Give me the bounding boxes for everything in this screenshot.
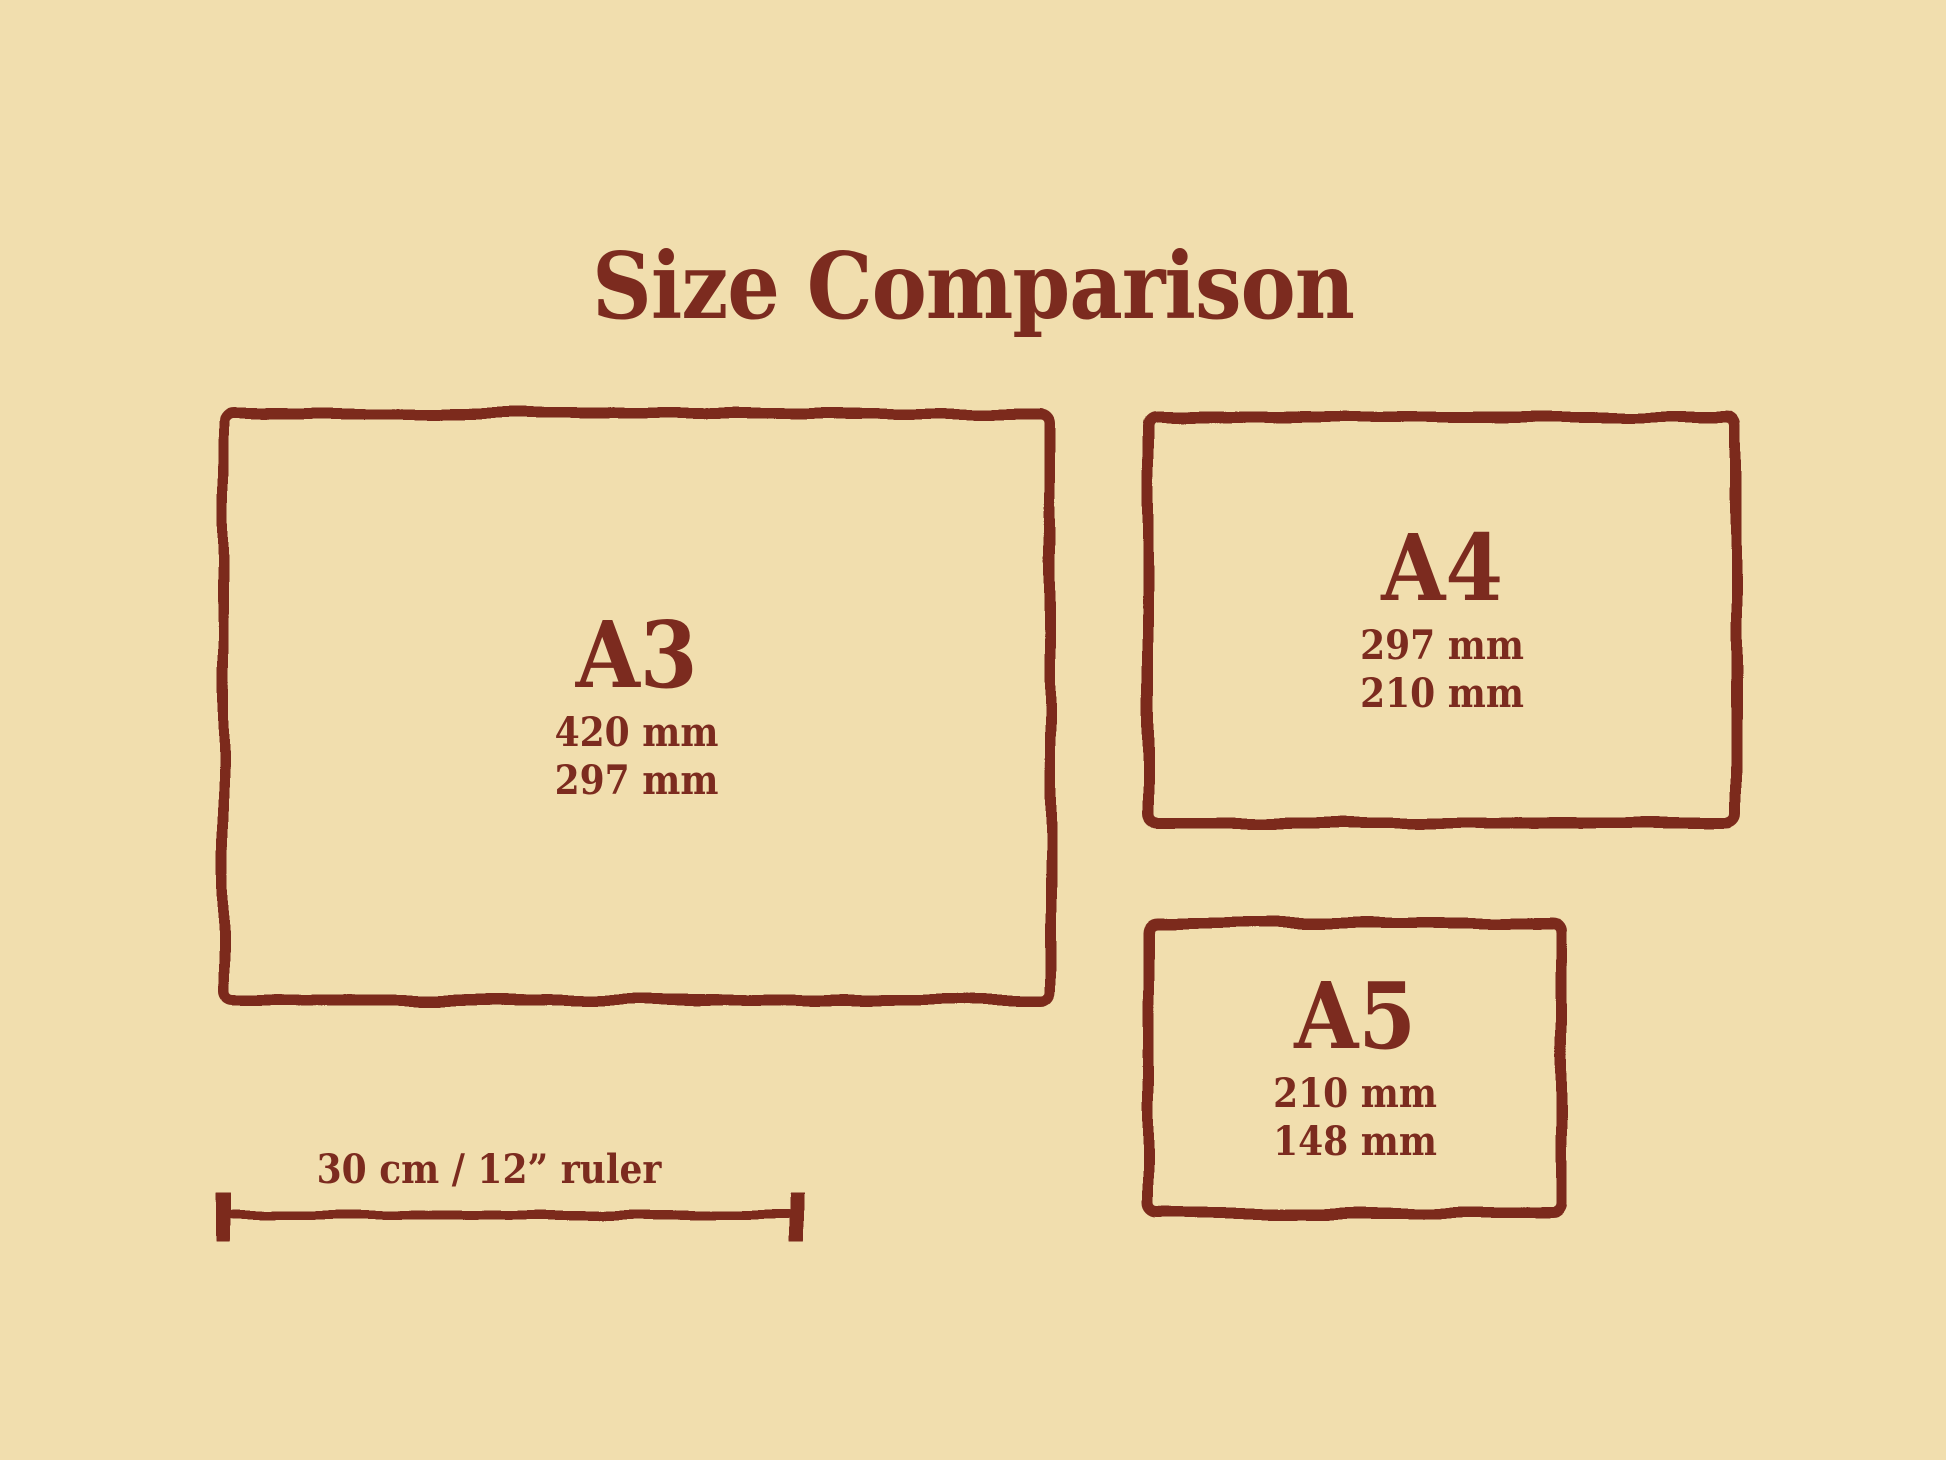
a5-height-value: 148 mm bbox=[1273, 1118, 1437, 1166]
a4-paper-box: A4 297 mm 210 mm bbox=[1148, 417, 1736, 823]
a3-width-value: 420 mm bbox=[555, 709, 719, 757]
a3-paper-box: A3 420 mm 297 mm bbox=[223, 413, 1050, 1000]
a5-width-value: 210 mm bbox=[1273, 1070, 1437, 1118]
a3-height-value: 297 mm bbox=[555, 757, 719, 805]
a5-label: A5 bbox=[1294, 970, 1416, 1062]
a3-label: A3 bbox=[576, 609, 698, 701]
size-comparison-infographic: Size Comparison A3 420 mm 297 mm A4 297 … bbox=[0, 0, 1946, 1460]
a4-width-value: 297 mm bbox=[1360, 622, 1524, 670]
a5-paper-box: A5 210 mm 148 mm bbox=[1148, 923, 1562, 1213]
ruler-caption: 30 cm / 12” ruler bbox=[200, 1148, 778, 1192]
page-title: Size Comparison bbox=[0, 238, 1946, 334]
a4-height-value: 210 mm bbox=[1360, 670, 1524, 718]
a4-label: A4 bbox=[1381, 522, 1503, 614]
